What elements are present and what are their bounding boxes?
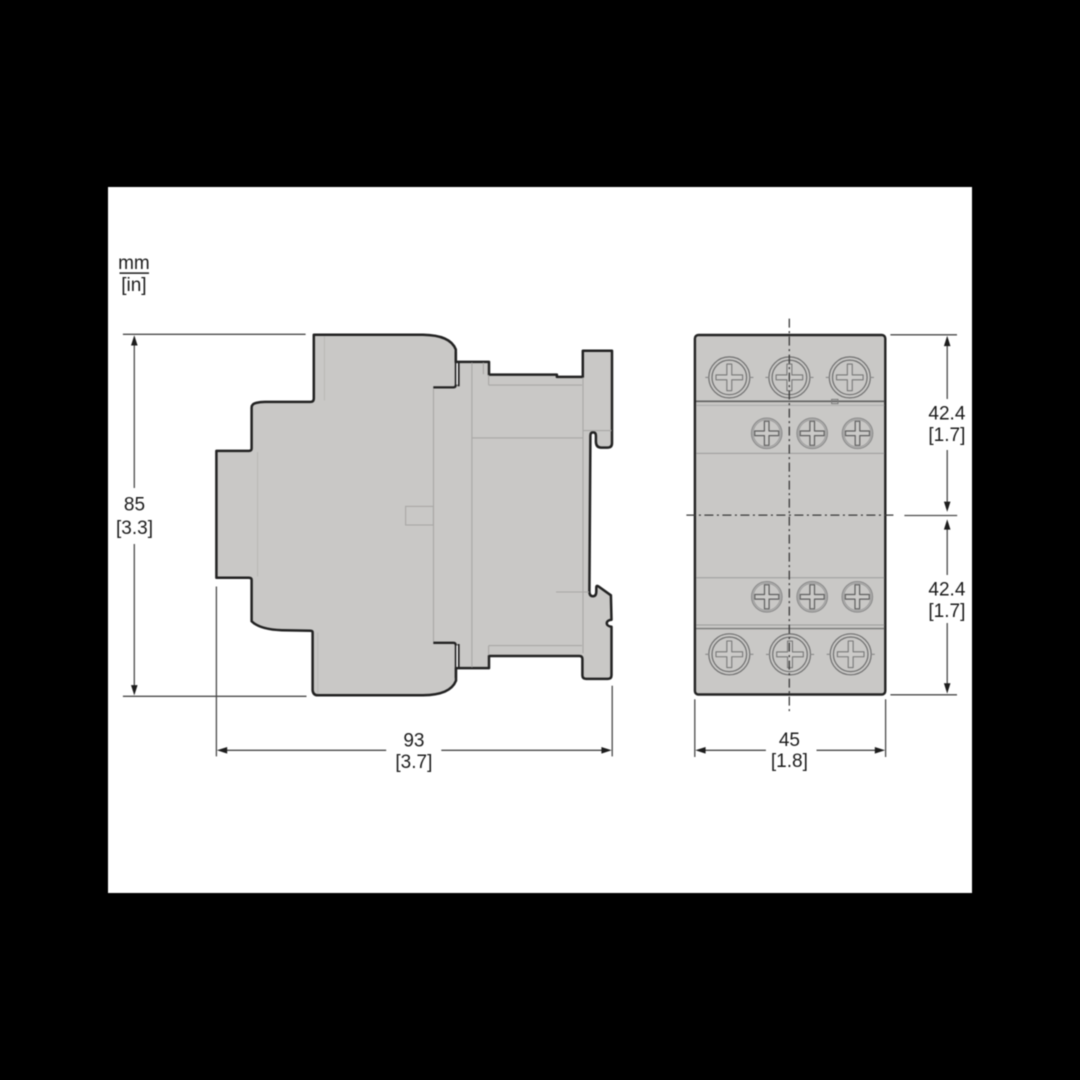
svg-text:85: 85: [124, 494, 145, 515]
svg-text:93: 93: [403, 730, 424, 751]
svg-text:[in]: [in]: [121, 275, 146, 296]
svg-text:[3.7]: [3.7]: [395, 752, 432, 773]
svg-text:[1.7]: [1.7]: [928, 601, 965, 622]
svg-text:42.4: 42.4: [928, 579, 965, 600]
svg-text:[1.8]: [1.8]: [771, 751, 808, 772]
svg-text:[3.3]: [3.3]: [116, 518, 153, 539]
svg-text:42.4: 42.4: [928, 403, 965, 424]
svg-text:[1.7]: [1.7]: [928, 425, 965, 446]
svg-text:45: 45: [779, 730, 800, 751]
svg-text:mm: mm: [118, 253, 150, 274]
